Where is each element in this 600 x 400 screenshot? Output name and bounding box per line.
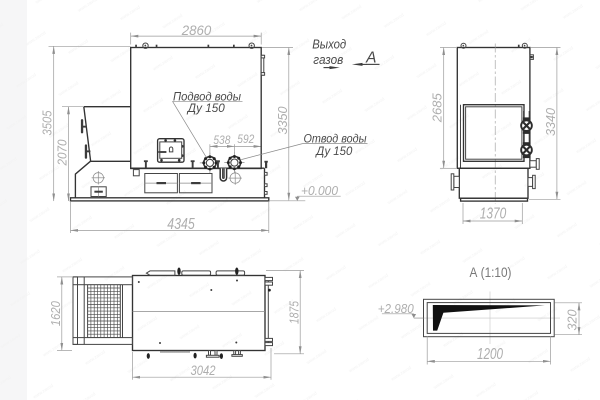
svg-text:2685: 2685	[430, 93, 445, 124]
svg-text:320: 320	[564, 309, 579, 331]
svg-text:Ду 150: Ду 150	[186, 101, 225, 115]
svg-text:1620: 1620	[48, 300, 63, 326]
svg-text:538: 538	[213, 135, 231, 147]
svg-text:Выход: Выход	[312, 36, 346, 51]
svg-text:3340: 3340	[543, 107, 558, 136]
svg-text:Ду 150: Ду 150	[314, 144, 352, 158]
svg-text:592: 592	[237, 134, 255, 146]
svg-text:1875: 1875	[286, 300, 301, 324]
svg-text:2070: 2070	[55, 139, 70, 167]
svg-text:1370: 1370	[480, 206, 507, 223]
svg-text:3350: 3350	[275, 106, 290, 135]
svg-text:3505: 3505	[40, 110, 55, 136]
svg-text:3042: 3042	[191, 362, 216, 378]
svg-text:газов: газов	[313, 52, 343, 67]
svg-text:2860: 2860	[181, 23, 212, 38]
svg-text:1200: 1200	[477, 346, 503, 363]
svg-text:А (1:10): А (1:10)	[470, 264, 512, 280]
svg-text:4345: 4345	[167, 216, 195, 233]
